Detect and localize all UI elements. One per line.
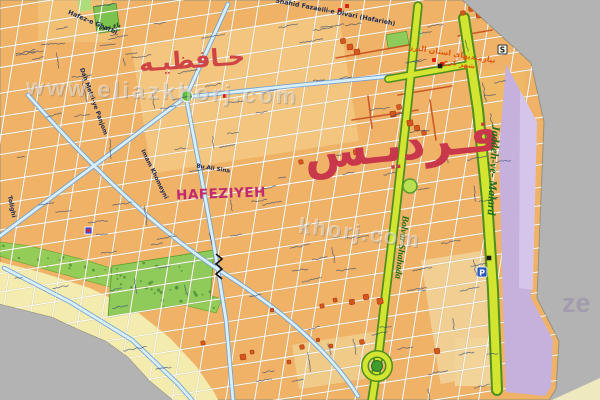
traffic-circle (182, 91, 193, 102)
roundabout (365, 354, 389, 378)
metro-icon (85, 227, 92, 234)
services-icon: S (498, 45, 507, 55)
map-image: P S فـردیـس حـافظيـه HAFEZIYEH Jaddeh-ye… (0, 0, 600, 400)
parking-icon: P (477, 267, 487, 278)
map-canvas: P S فـردیـس حـافظيـه HAFEZIYEH Jaddeh-ye… (0, 0, 600, 400)
green-square (403, 179, 417, 193)
svg-text:P: P (479, 269, 485, 278)
svg-text:S: S (500, 46, 505, 55)
label-hafeziyeh-latin: HAFEZIYEH (176, 184, 266, 203)
